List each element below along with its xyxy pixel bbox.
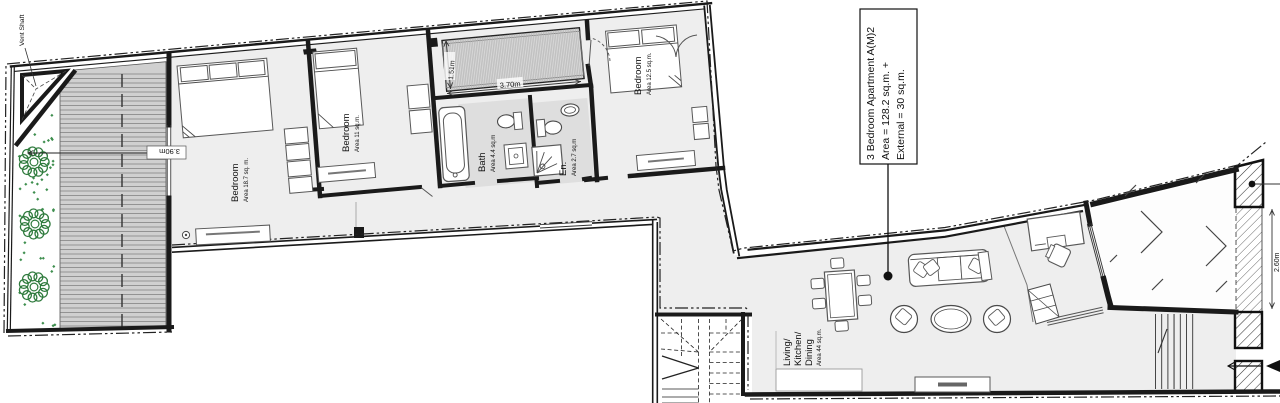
svg-text:Vent Shaft: Vent Shaft — [19, 15, 26, 46]
svg-text:External = 30 sq.m.: External = 30 sq.m. — [895, 69, 907, 160]
svg-text:3.90m: 3.90m — [159, 147, 180, 156]
svg-text:3 Bedroom Apartment A(M)2: 3 Bedroom Apartment A(M)2 — [865, 27, 877, 160]
svg-text:Area 2.7 sq.m: Area 2.7 sq.m — [572, 139, 578, 176]
svg-text:Living/: Living/ — [782, 338, 793, 366]
svg-text:Bedroom: Bedroom — [230, 163, 241, 202]
svg-text:Area 4.4 sq.m: Area 4.4 sq.m — [491, 135, 497, 172]
svg-text:3.70m: 3.70m — [499, 79, 521, 90]
svg-text:En.: En. — [558, 162, 569, 176]
svg-text:Bedroom: Bedroom — [633, 56, 644, 95]
svg-text:Area 18.7 sq. m.: Area 18.7 sq. m. — [244, 158, 250, 202]
svg-text:Dining: Dining — [804, 339, 815, 366]
svg-text:Area 12.5 sq.m.: Area 12.5 sq.m. — [647, 52, 653, 95]
svg-text:Bedroom: Bedroom — [341, 113, 352, 152]
svg-text:Area 44 sq.m.: Area 44 sq.m. — [817, 328, 823, 366]
svg-text:Area = 128.2 sq.m. +: Area = 128.2 sq.m. + — [880, 62, 892, 160]
svg-text:Area 11 sq.m.: Area 11 sq.m. — [355, 115, 361, 152]
svg-text:2.60m: 2.60m — [1274, 252, 1280, 272]
svg-text:Bath: Bath — [477, 152, 488, 172]
svg-text:Kitchen/: Kitchen/ — [793, 331, 804, 366]
